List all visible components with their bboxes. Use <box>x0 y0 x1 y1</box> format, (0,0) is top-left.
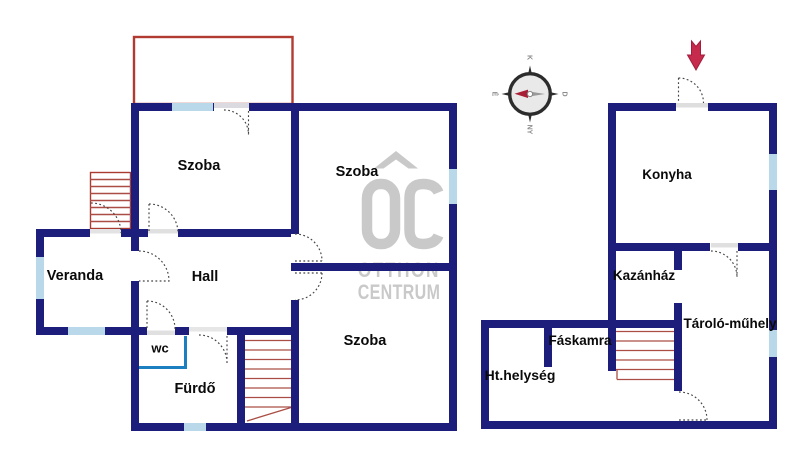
svg-text:Szoba: Szoba <box>336 164 380 180</box>
svg-text:Veranda: Veranda <box>47 268 104 284</box>
svg-text:Tároló-műhely: Tároló-műhely <box>683 316 777 331</box>
svg-text:D: D <box>561 91 568 96</box>
svg-text:Szoba: Szoba <box>344 333 388 349</box>
svg-text:Szoba: Szoba <box>178 158 222 174</box>
svg-text:wc: wc <box>150 341 168 356</box>
svg-text:CENTRUM: CENTRUM <box>358 281 441 305</box>
svg-text:Konyha: Konyha <box>642 167 692 182</box>
svg-text:Ht.helység: Ht.helység <box>485 367 556 383</box>
svg-text:Hall: Hall <box>192 269 219 285</box>
svg-text:Fáskamra: Fáskamra <box>548 333 612 348</box>
svg-text:NY: NY <box>526 125 533 135</box>
svg-text:Fürdő: Fürdő <box>174 381 215 397</box>
svg-text:É: É <box>491 92 500 97</box>
svg-text:Kazánház: Kazánház <box>613 268 676 283</box>
svg-text:K: K <box>526 55 533 60</box>
